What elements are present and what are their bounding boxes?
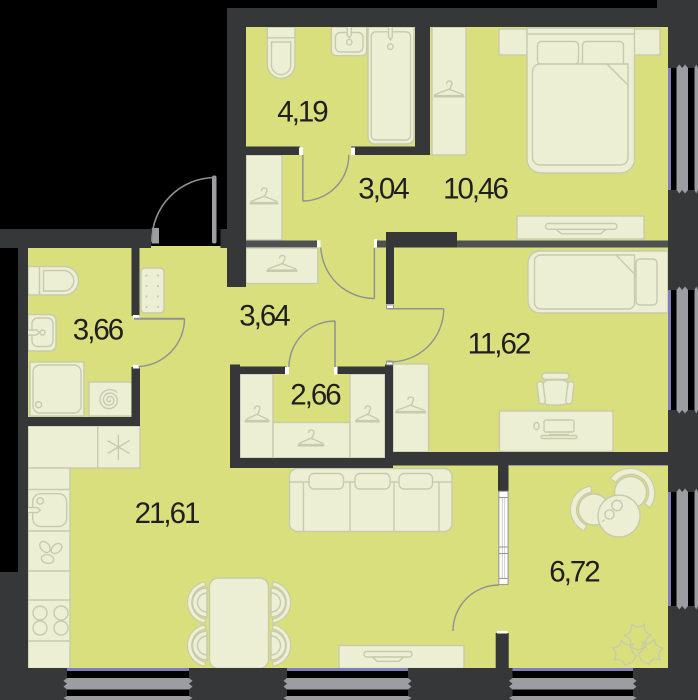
- svg-text:3,04: 3,04: [358, 173, 409, 206]
- svg-text:3,64: 3,64: [239, 300, 290, 333]
- svg-text:21,61: 21,61: [135, 497, 199, 530]
- svg-text:3,66: 3,66: [73, 314, 124, 347]
- svg-text:2,66: 2,66: [290, 379, 341, 412]
- svg-text:10,46: 10,46: [443, 173, 508, 206]
- svg-text:6,72: 6,72: [549, 556, 599, 589]
- svg-text:11,62: 11,62: [468, 328, 530, 361]
- svg-text:4,19: 4,19: [277, 96, 328, 129]
